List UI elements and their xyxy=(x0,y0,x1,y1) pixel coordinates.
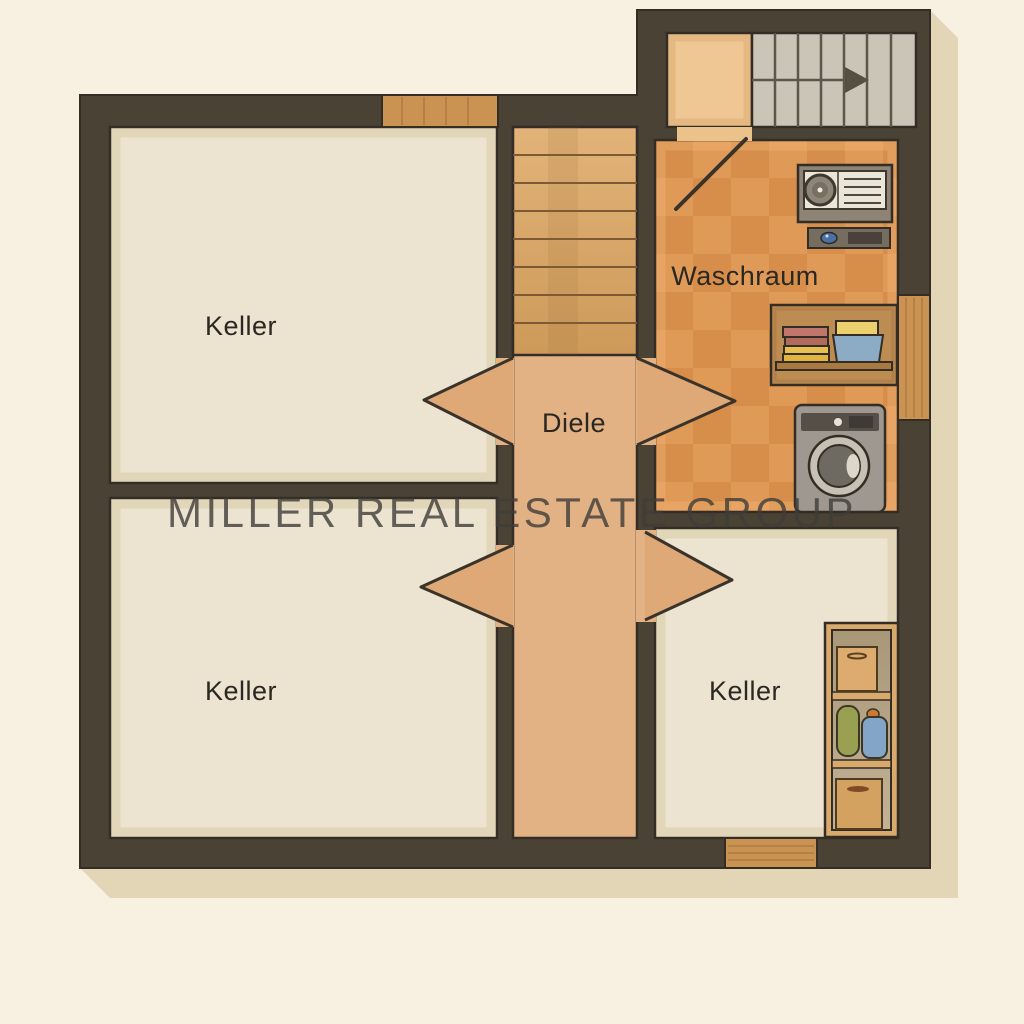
intercom-icon xyxy=(808,228,890,248)
window-bottom-icon xyxy=(725,838,817,868)
room-label-keller-top-left: Keller xyxy=(205,311,277,341)
storage-box-bottom xyxy=(836,779,882,829)
room-label-diele: Diele xyxy=(542,408,606,438)
room-keller-bottom-left xyxy=(110,498,497,838)
storage-box-top xyxy=(837,647,877,691)
window-right-icon xyxy=(898,295,930,420)
floor-plan-canvas: Keller Keller Keller Diele Waschraum MIL… xyxy=(0,0,1024,1024)
storage-shelf-icon xyxy=(825,623,898,837)
laundry-shelf-icon xyxy=(771,305,897,385)
control-panel-icon xyxy=(798,165,892,222)
floor-plan-svg: Keller Keller Keller Diele Waschraum MIL… xyxy=(0,0,1024,1024)
room-label-waschraum: Waschraum xyxy=(671,261,819,291)
room-keller-top-left xyxy=(110,127,497,483)
stair-landing xyxy=(667,33,752,127)
stairs-up-icon xyxy=(752,33,916,127)
room-label-keller-bottom-right: Keller xyxy=(709,676,781,706)
room-label-keller-bottom-left: Keller xyxy=(205,676,277,706)
watermark-text: MILLER REAL ESTATE GROUP xyxy=(167,489,857,536)
wooden-stairs-icon xyxy=(513,127,637,355)
window-top-icon xyxy=(382,95,498,127)
